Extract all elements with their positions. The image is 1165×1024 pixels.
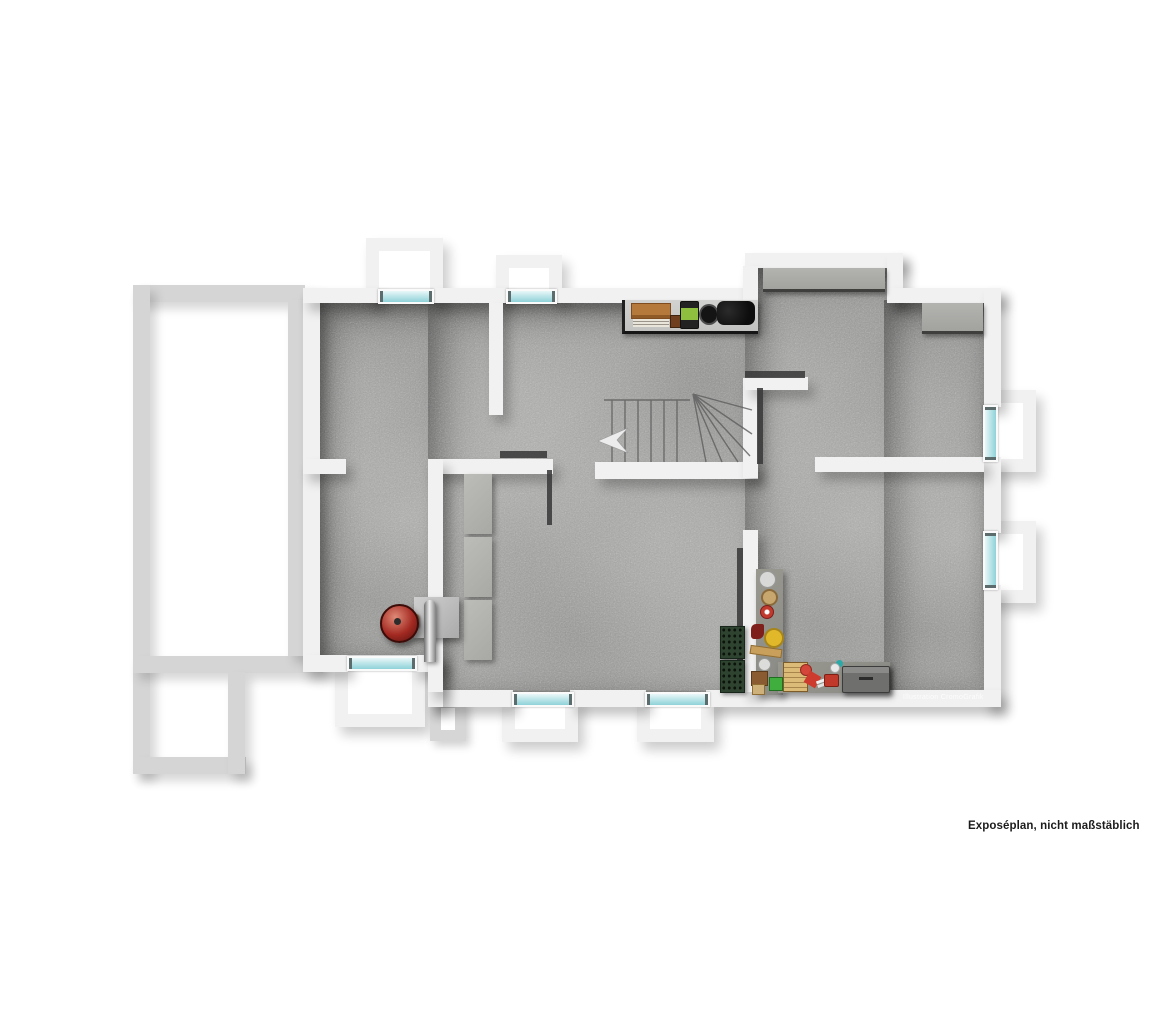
storage-shelf [622,300,758,334]
window-right-upper [983,405,998,462]
window-bottom-mid2 [645,692,710,707]
green-machine [680,301,699,329]
red-rag [751,624,764,639]
wall-bottom-left-1 [303,655,348,672]
window-bottom-left [347,656,417,671]
storage-block [464,537,492,597]
storage-block [464,474,492,534]
storage-block [464,600,492,660]
stairs-with-winder [598,388,758,464]
floor-plan-canvas: Illustration CromoGrafik Exposéplan, nic… [0,0,1165,1024]
wall-interior-left-horiz [428,459,553,474]
black-pot [699,304,719,325]
dark-wall-accent-1 [500,451,547,458]
wall-top-2 [430,288,508,303]
concrete-sideboard-1 [763,268,885,292]
white-can-2 [830,663,840,673]
wall-right-3 [984,585,1001,706]
stacked-storage-blocks [464,474,492,660]
window-bottom-mid1 [512,692,574,707]
furnace-box [414,597,459,638]
black-bags [717,301,755,325]
wall-right-2 [984,457,1001,533]
wall-right-rooms-divider [815,457,984,472]
window-top-left [378,289,434,304]
annex-outline-left [133,285,150,774]
plan-caption: Exposéplan, nicht maßstäblich [968,820,1140,832]
wall-bottom-mid-2 [570,690,646,707]
bottle-crate-2 [720,660,745,693]
tool-chest-handle [859,677,873,680]
annex-outline-mid [133,656,323,673]
rope-coil [761,589,778,606]
bottle-crate-1 [720,626,745,659]
paint-can-yellow [764,628,784,648]
concrete-sideboard-2 [922,303,983,334]
paint-can-red [760,605,774,619]
floor-room-right [884,300,985,692]
watermark: Illustration CromoGrafik [903,694,984,701]
window-right-lower [983,531,998,590]
wall-stub-left [303,459,346,474]
green-box [769,677,783,691]
wall-topleft-rooms-divider [489,303,503,415]
dark-wall-accent-2 [547,470,552,525]
annex-outline-top [133,285,305,302]
paint-can-white [759,571,776,588]
wall-stairs-bottom [595,462,758,479]
furnace-pipe [424,600,436,662]
tool-chest [842,666,890,693]
dark-wall-accent-4 [745,371,805,378]
wall-top-1 [303,288,380,303]
tan-block [752,684,765,695]
wall-right-1 [984,288,1001,407]
boiler-cap [394,618,401,625]
window-top-middle [506,289,557,304]
direction-arrow [598,428,628,453]
paper-stack [633,319,669,327]
wood-crate [631,303,671,319]
annex-outline-inner-right [228,672,245,774]
wall-top-right [745,253,903,268]
toolbox-red [824,674,839,687]
paint-can-small [758,658,771,671]
